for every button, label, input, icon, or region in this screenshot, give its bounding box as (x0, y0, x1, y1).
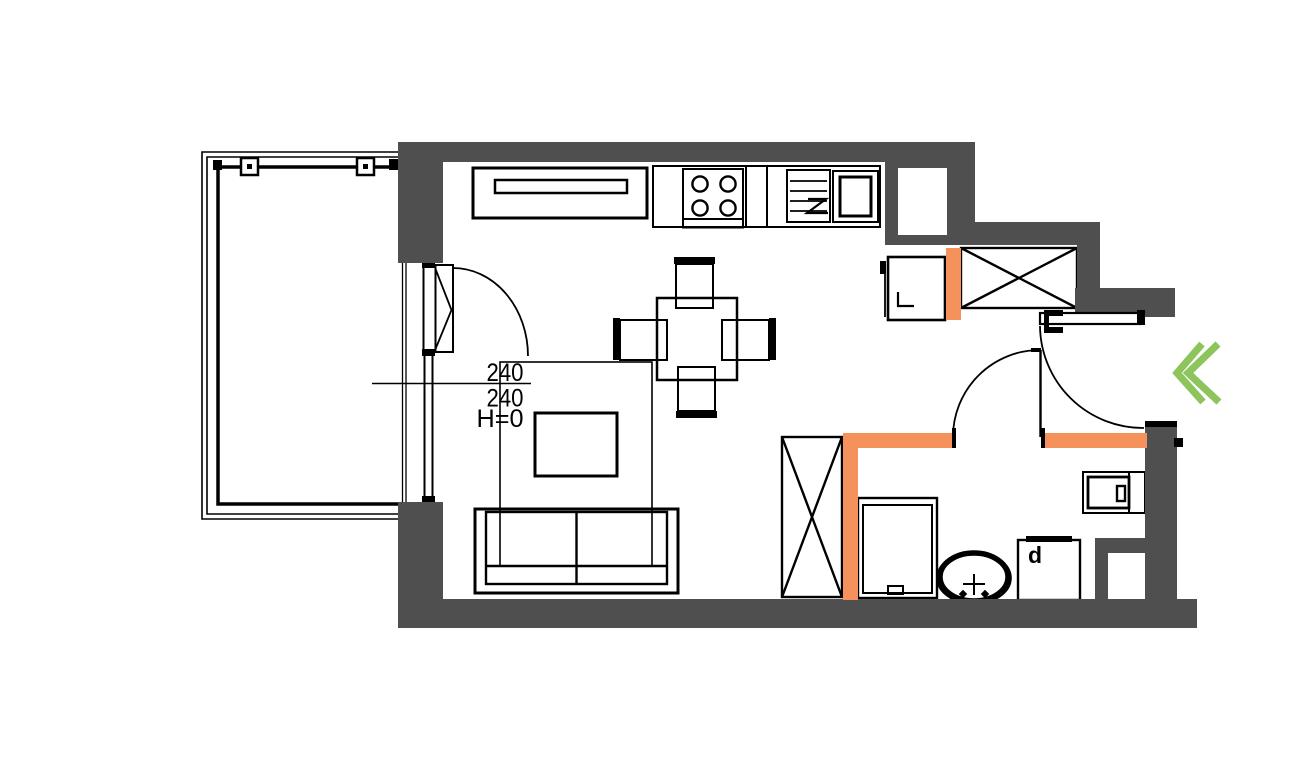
highlight-wall-fridge-side (946, 248, 961, 320)
fridge-symbol (898, 292, 914, 306)
sink-drainer (787, 170, 830, 222)
entry-door-threshold-tick (1145, 421, 1177, 427)
wall-top (398, 142, 975, 162)
wall-right-lower (1145, 421, 1177, 600)
railing-end-cap (389, 159, 398, 170)
wall-drop (1077, 245, 1100, 290)
wall-band-right (975, 222, 1100, 245)
chair-back (674, 257, 715, 264)
shower-tray-outer (858, 498, 937, 598)
dining-set (613, 257, 776, 418)
chair-right (722, 320, 769, 360)
balcony-slab-outer (202, 152, 398, 519)
balcony-door-swing-arc (453, 268, 528, 356)
entry-door-swing-arc (1040, 326, 1144, 428)
entry-door (1040, 310, 1183, 447)
dimension-value-top: 240 (487, 359, 524, 387)
window-dimension-annotation: 240 240 H=0 (372, 359, 531, 433)
balcony-slab-inner (207, 157, 398, 514)
stove-burner (692, 200, 707, 215)
bathroom-door-jamb (1041, 428, 1045, 448)
bath-shaft-cross (782, 437, 842, 597)
entry-door-hinge-bracket (1044, 310, 1049, 333)
toilet-flush-cross (963, 574, 985, 595)
dimension-height-note: H=0 (477, 405, 524, 433)
entry-door-frame-tick (1174, 438, 1183, 447)
washbasin-inner (1088, 477, 1129, 508)
railing-end-cap (213, 160, 222, 170)
wall-niche-opening (898, 168, 947, 235)
floor-plan: d (0, 0, 1301, 768)
railing-post-dot (363, 164, 368, 169)
highlight-wall-bath-top-left (843, 433, 953, 448)
wall-pier-upper-left (398, 142, 443, 263)
entry-door-hinge-bracket (1049, 310, 1063, 316)
window-frame-block (422, 349, 435, 356)
chair-back (613, 318, 620, 360)
kitchen-cabinet-handle (495, 180, 627, 193)
wall-stripe (1095, 553, 1108, 600)
entry-door-leaf-cap (1137, 310, 1145, 325)
balcony (202, 152, 398, 519)
shower-tray-inner (863, 505, 932, 593)
fridge (888, 257, 945, 320)
bathroom-door (952, 348, 1045, 448)
stove-burner (720, 200, 735, 215)
balcony-railing (218, 167, 398, 504)
bathroom-door-swing-arc (953, 350, 1040, 437)
stove-burner (720, 176, 735, 191)
bathroom-door-jamb (952, 428, 956, 448)
chair-left (620, 320, 667, 360)
highlight-wall-bath-left (843, 448, 858, 600)
wall-bottom (398, 599, 1197, 628)
sink-drainer-lines (790, 181, 827, 211)
washer-label: d (1028, 542, 1042, 568)
chair-top (676, 264, 713, 308)
balcony-door-direction-triangle (436, 269, 452, 349)
highlight-wall-bath-top-right (1045, 433, 1147, 448)
sink-basin-inner (840, 177, 871, 216)
floor-plan-drawing: d (0, 0, 1301, 768)
stove-burner (692, 176, 707, 191)
washbasin-tap (1117, 486, 1125, 501)
hall-shaft-cross (961, 248, 1077, 308)
entry-door-hinge-bracket (1049, 327, 1063, 333)
chair-back (676, 411, 717, 418)
coffee-table (535, 413, 617, 476)
wall-stub (1095, 538, 1147, 553)
chair-bottom (678, 367, 715, 411)
chair-back (769, 318, 776, 360)
railing-post-dot (247, 164, 252, 169)
fridge-hinge (880, 261, 886, 274)
wall-pier-lower-left (398, 502, 443, 602)
entrance-chevrons-icon (1177, 344, 1219, 402)
